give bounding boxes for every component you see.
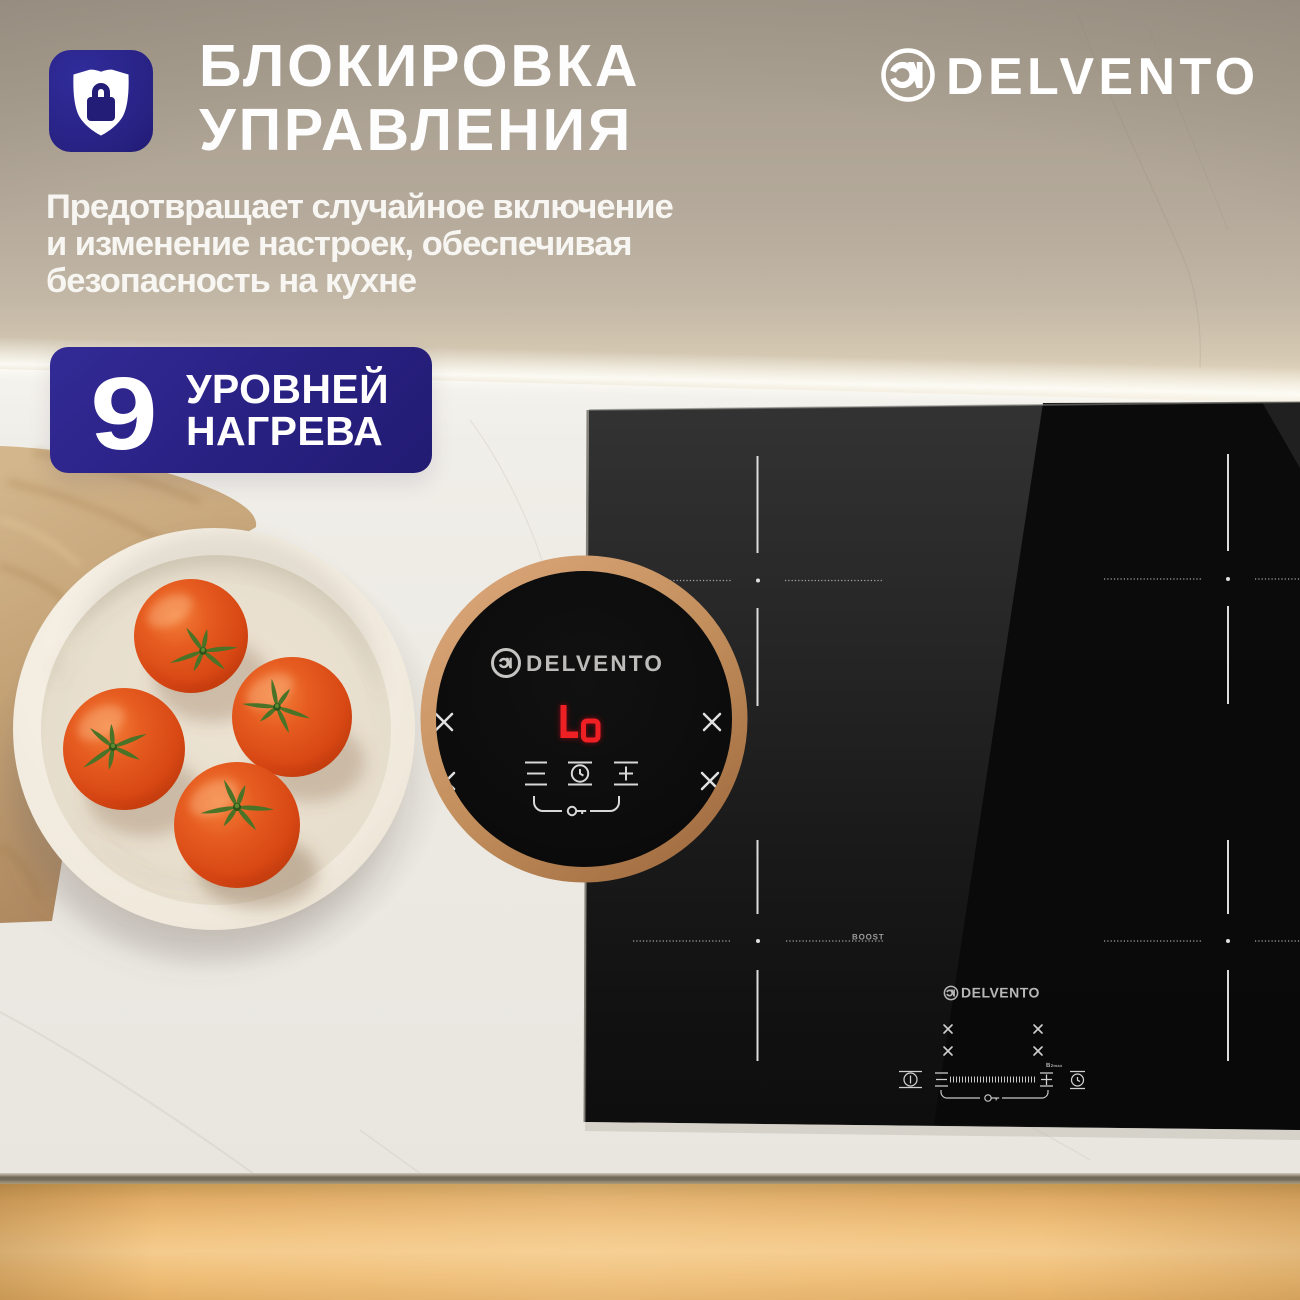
- svg-text:DELVENTO: DELVENTO: [946, 48, 1260, 106]
- svg-text:DELVENTO: DELVENTO: [526, 651, 664, 676]
